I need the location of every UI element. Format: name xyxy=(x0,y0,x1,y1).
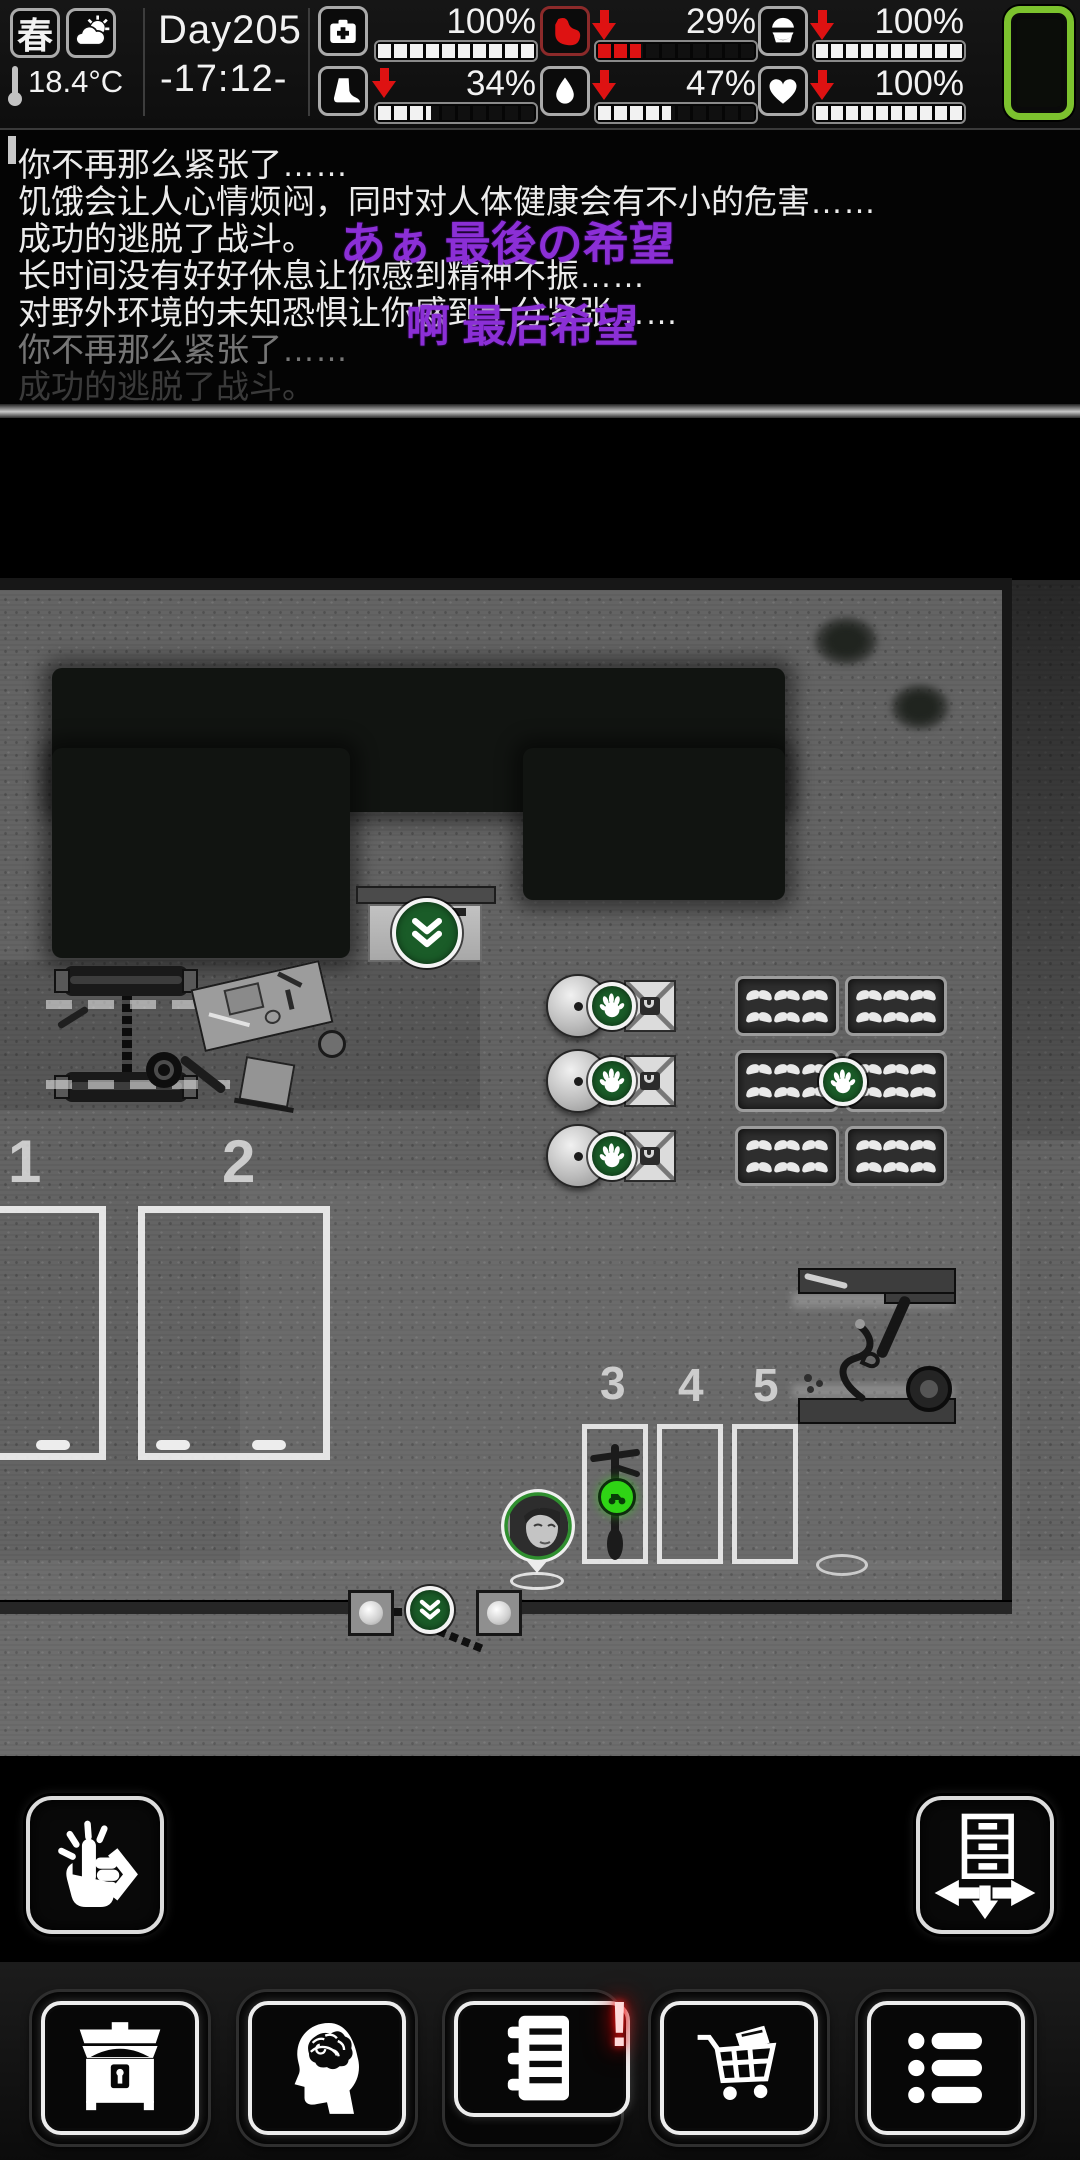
double-chevron-down-icon xyxy=(415,1595,445,1625)
work-shelf xyxy=(884,1292,956,1304)
trade-button[interactable] xyxy=(651,1992,827,2144)
growing-tray xyxy=(735,976,839,1036)
wheel-stop xyxy=(252,1440,286,1450)
season-label: 春 xyxy=(17,7,53,59)
move-furniture-button[interactable] xyxy=(916,1796,1054,1934)
mood-stat-icon-box xyxy=(758,66,808,116)
thirst-bar xyxy=(594,102,758,124)
health-value: 100% xyxy=(374,2,536,42)
log-divider xyxy=(0,404,1080,418)
floor-number-5: 5 xyxy=(753,1362,779,1408)
growing-tray xyxy=(845,1126,947,1186)
spare-wheel xyxy=(906,1366,952,1412)
floor-stain xyxy=(878,674,962,740)
parking-spot-4 xyxy=(657,1424,723,1564)
floor-number-1: 1 xyxy=(8,1132,41,1192)
sanity-stat-icon-box xyxy=(758,6,808,56)
temperature-value: 18.4°C xyxy=(28,64,123,100)
floating-text-cn: 啊 最后希望 xyxy=(406,290,638,354)
vehicle-marker[interactable] xyxy=(598,1478,636,1516)
floor-ellipse-mark xyxy=(816,1554,868,1576)
log-line: 成功的逃脱了战斗。 xyxy=(18,360,315,404)
divider xyxy=(308,8,310,116)
heart-icon xyxy=(766,74,800,108)
dark-room xyxy=(52,748,350,958)
parking-spot-2 xyxy=(138,1206,330,1460)
thermometer-icon xyxy=(8,66,22,110)
hunger-stat-icon-box xyxy=(540,6,590,56)
mood-bar xyxy=(812,102,966,124)
thirst-value: 47% xyxy=(594,64,756,104)
menu-list-button[interactable] xyxy=(858,1992,1034,2144)
machine-interact-marker[interactable] xyxy=(588,1132,636,1180)
tap-hand-icon xyxy=(39,1809,151,1921)
divider xyxy=(143,8,145,116)
growing-tray xyxy=(735,1126,839,1186)
hand-icon xyxy=(597,1066,627,1096)
tray-interact-marker[interactable] xyxy=(819,1058,867,1106)
stamina-value: 34% xyxy=(374,64,536,104)
head-icon xyxy=(766,14,800,48)
stone xyxy=(816,1380,823,1387)
mind-status-button[interactable] xyxy=(239,1992,415,2144)
south-wall xyxy=(502,1600,1012,1614)
journal-alert-badge: ! xyxy=(609,1987,630,2061)
stamina-bar xyxy=(374,102,538,124)
sanity-bar xyxy=(812,40,966,62)
first-aid-kit-icon xyxy=(325,13,361,49)
car-lift-rail xyxy=(64,966,188,996)
boot-icon xyxy=(326,74,360,108)
stone xyxy=(807,1386,814,1393)
stone xyxy=(804,1374,812,1382)
floating-text-jp: あぁ 最後の希望 xyxy=(340,208,675,274)
gate-post xyxy=(348,1590,394,1636)
south-wall xyxy=(0,1600,352,1614)
sanity-value: 100% xyxy=(812,2,964,42)
wheel-stop xyxy=(36,1440,70,1450)
small-table xyxy=(239,1056,296,1108)
gate-post xyxy=(476,1590,522,1636)
list-icon xyxy=(892,2014,1000,2122)
tire xyxy=(146,1052,182,1088)
move-cabinet-icon xyxy=(929,1809,1041,1921)
status-bar: 春 18.4°C Day205 -17:12- 100% xyxy=(0,0,1080,128)
avatar-shadow-ring xyxy=(510,1572,564,1590)
hunger-value: 29% xyxy=(594,2,756,42)
health-stat-icon-box xyxy=(318,6,368,56)
machine-interact-marker[interactable] xyxy=(588,982,636,1030)
shopping-cart-icon xyxy=(685,2014,793,2122)
dark-room xyxy=(523,748,785,900)
game-map[interactable]: 1 2 3 4 5 xyxy=(0,418,1080,1962)
time-display: -17:12- xyxy=(160,58,287,101)
mind-brain-icon xyxy=(273,2014,381,2122)
day-counter: Day205 xyxy=(158,8,302,53)
gate-exit-marker[interactable] xyxy=(406,1586,454,1634)
floor-marking xyxy=(46,1080,230,1089)
device-slot[interactable] xyxy=(1004,6,1074,120)
floor-marking xyxy=(46,1000,210,1009)
bottom-toolbar: ! xyxy=(0,1960,1080,2160)
season-indicator: 春 xyxy=(10,8,60,58)
hand-icon xyxy=(597,1141,627,1171)
journal-icon xyxy=(488,2005,596,2113)
player-avatar[interactable] xyxy=(498,1486,578,1566)
log-scrollbar-thumb[interactable] xyxy=(8,136,16,164)
growing-tray xyxy=(845,976,947,1036)
weather-indicator xyxy=(66,8,116,58)
parking-spot-5 xyxy=(732,1424,798,1564)
floor-number-3: 3 xyxy=(600,1360,626,1406)
hose xyxy=(832,1316,896,1402)
chest-icon xyxy=(65,2013,175,2123)
game-screen: 春 18.4°C Day205 -17:12- 100% xyxy=(0,0,1080,2160)
machine-interact-marker[interactable] xyxy=(588,1057,636,1105)
wheel-stop xyxy=(156,1440,190,1450)
inventory-button[interactable] xyxy=(32,1992,208,2144)
stamina-stat-icon-box xyxy=(318,66,368,116)
sun-behind-cloud-icon xyxy=(71,13,111,53)
hand-icon xyxy=(828,1067,858,1097)
floor-number-2: 2 xyxy=(222,1132,255,1192)
stool xyxy=(318,1030,346,1058)
hand-icon xyxy=(597,991,627,1021)
double-chevron-down-icon xyxy=(405,911,449,955)
hunger-bar xyxy=(594,40,758,62)
water-drop-icon xyxy=(548,74,582,108)
health-bar xyxy=(374,40,538,62)
parking-spot-1 xyxy=(0,1206,106,1460)
stomach-icon xyxy=(547,13,583,49)
tap-interact-button[interactable] xyxy=(26,1796,164,1934)
floor-number-4: 4 xyxy=(678,1362,704,1408)
floor-stain xyxy=(800,606,892,676)
motorcycle-icon xyxy=(605,1485,629,1509)
mood-value: 100% xyxy=(812,64,964,104)
descend-door-marker[interactable] xyxy=(392,898,462,968)
north-wall xyxy=(0,578,1012,590)
east-wall xyxy=(1002,578,1012,1608)
thirst-stat-icon-box xyxy=(540,66,590,116)
journal-button[interactable]: ! xyxy=(445,1992,621,2144)
